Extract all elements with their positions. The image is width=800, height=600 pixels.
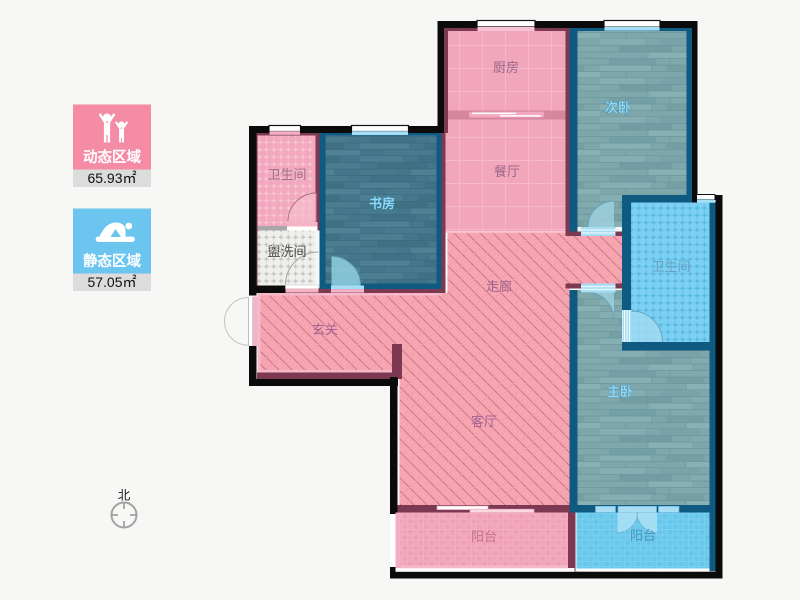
svg-text:客厅: 客厅	[471, 414, 497, 429]
svg-text:走廊: 走廊	[486, 279, 512, 294]
svg-text:静态区域: 静态区域	[83, 252, 141, 270]
svg-text:餐厅: 餐厅	[494, 164, 520, 179]
svg-text:玄关: 玄关	[312, 322, 338, 337]
svg-text:卫生间: 卫生间	[651, 259, 690, 274]
svg-text:阳台: 阳台	[630, 528, 656, 543]
svg-text:北: 北	[118, 489, 131, 503]
svg-text:57.05㎡: 57.05㎡	[87, 274, 136, 290]
svg-text:65.93㎡: 65.93㎡	[87, 170, 136, 186]
svg-text:主卧: 主卧	[607, 384, 633, 399]
svg-text:厨房: 厨房	[493, 60, 519, 75]
svg-text:盥洗间: 盥洗间	[267, 244, 306, 259]
svg-text:卫生间: 卫生间	[267, 167, 306, 182]
svg-text:次卧: 次卧	[605, 100, 631, 115]
svg-text:书房: 书房	[369, 196, 395, 211]
svg-text:阳台: 阳台	[471, 529, 497, 544]
svg-text:动态区域: 动态区域	[83, 148, 141, 166]
